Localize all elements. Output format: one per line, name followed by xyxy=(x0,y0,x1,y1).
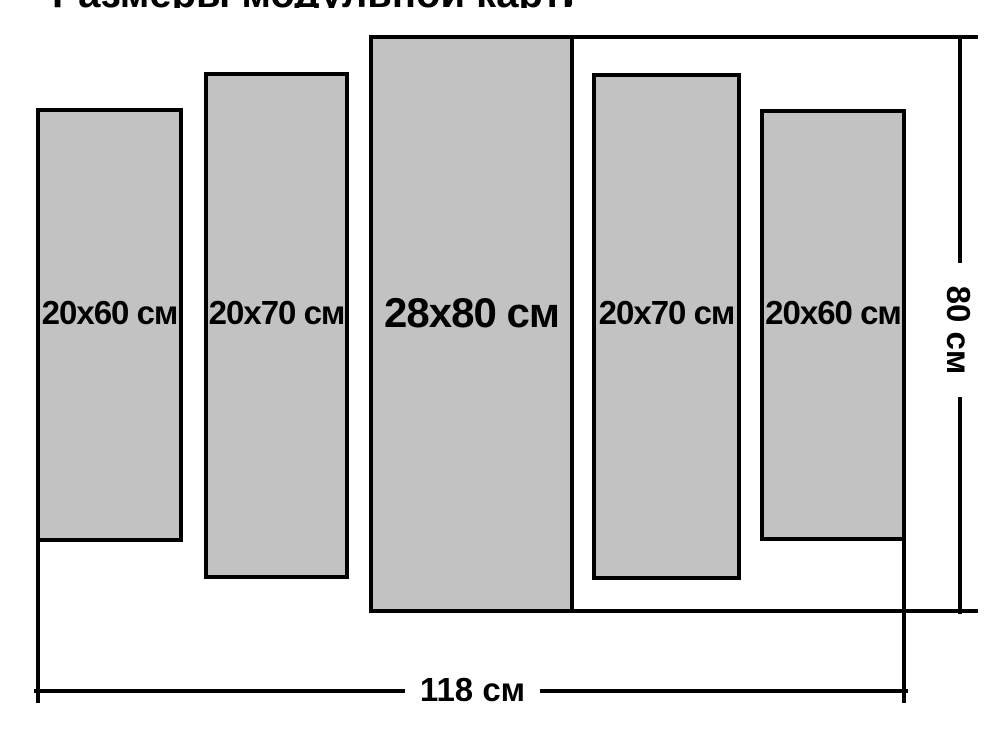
panel-28x80-center: 28x80 см xyxy=(369,35,574,613)
panel-size-label: 20x60 см xyxy=(758,296,908,330)
width-dimension-line-right xyxy=(540,689,908,693)
panel-20x70-right: 20x70 см xyxy=(592,73,741,580)
height-dimension-vertical-line-upper xyxy=(958,35,962,263)
total-width-label: 118 см xyxy=(403,668,542,712)
dimension-diagram: Размеры модульной картины 20x60 см 20x70… xyxy=(0,0,1000,732)
panel-20x60-left: 20x60 см xyxy=(36,108,183,542)
panel-size-label: 28x80 см xyxy=(367,292,576,334)
clipped-title-text: Размеры модульной картины xyxy=(52,0,572,8)
width-dimension-line-left xyxy=(34,689,405,693)
width-dimension-right-tick xyxy=(902,539,906,703)
height-dimension-bottom-line xyxy=(571,609,978,613)
panel-20x60-right: 20x60 см xyxy=(760,109,906,541)
height-dimension-top-line xyxy=(571,35,978,39)
panel-size-label: 20x70 см xyxy=(590,296,743,330)
width-dimension-left-tick xyxy=(36,540,40,703)
clipped-title: Размеры модульной картины xyxy=(52,0,572,8)
panel-size-label: 20x70 см xyxy=(202,296,351,330)
total-height-label: 80 см xyxy=(936,275,980,385)
panel-20x70-left: 20x70 см xyxy=(204,72,349,579)
height-dimension-vertical-line-lower xyxy=(958,397,962,614)
panel-size-label: 20x60 см xyxy=(34,296,185,330)
